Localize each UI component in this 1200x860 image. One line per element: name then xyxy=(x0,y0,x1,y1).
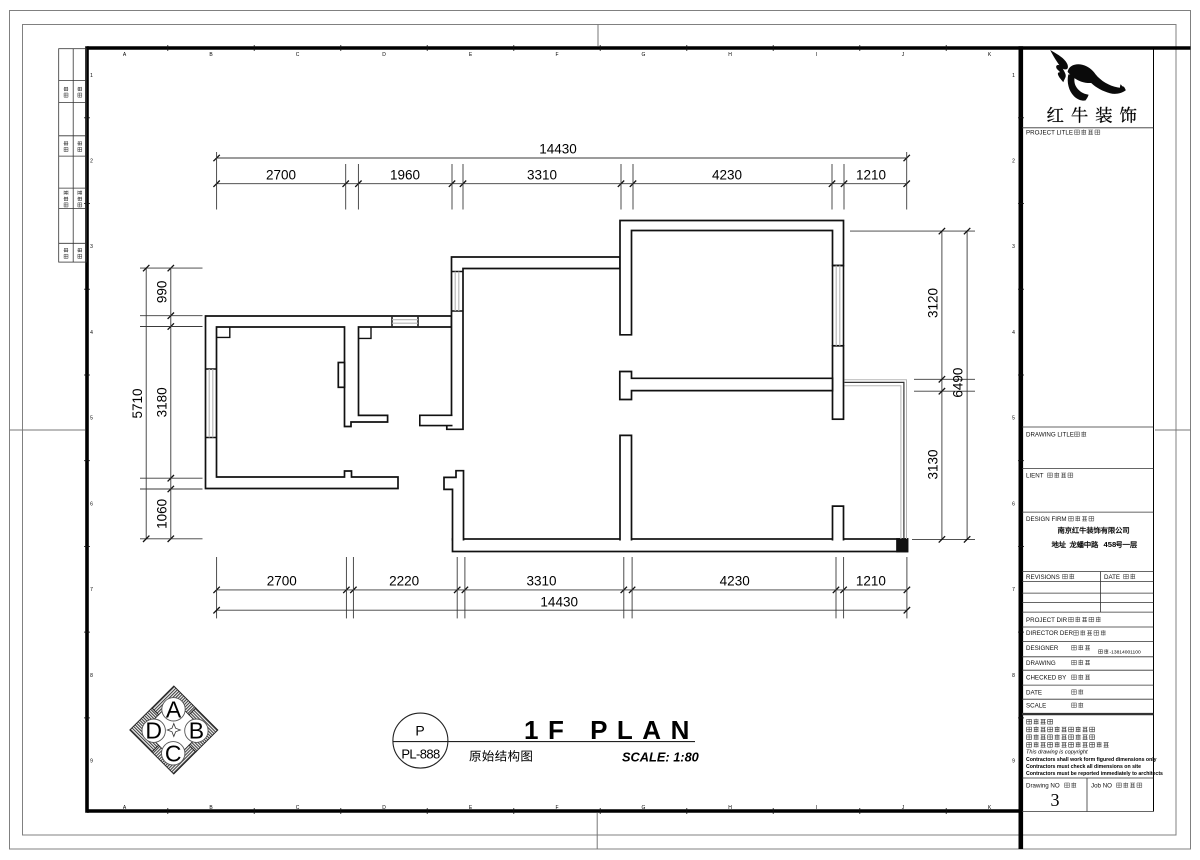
svg-text:-13814001100: -13814001100 xyxy=(1110,649,1141,655)
svg-text:458: 458 xyxy=(1104,540,1117,549)
svg-text:8: 8 xyxy=(1012,673,1015,679)
svg-text:SCALE: 1:80: SCALE: 1:80 xyxy=(622,750,699,765)
svg-text:2: 2 xyxy=(1012,159,1015,165)
svg-text:1: 1 xyxy=(1012,73,1015,79)
svg-text:PROJECT DIR: PROJECT DIR xyxy=(1026,617,1068,624)
svg-text:P: P xyxy=(415,723,424,739)
svg-text:Job NO: Job NO xyxy=(1091,783,1112,790)
svg-text:DATE: DATE xyxy=(1104,574,1120,581)
svg-text:4: 4 xyxy=(90,330,93,336)
svg-text:2: 2 xyxy=(90,159,93,165)
svg-text:SCALE: SCALE xyxy=(1026,703,1046,710)
svg-text:Contractors shall work form fi: Contractors shall work form figured dime… xyxy=(1026,757,1157,763)
svg-text:14430: 14430 xyxy=(539,142,577,157)
svg-text:REVISIONS: REVISIONS xyxy=(1026,574,1060,581)
svg-text:H: H xyxy=(728,52,732,58)
svg-text:4230: 4230 xyxy=(712,167,742,182)
svg-text:3130: 3130 xyxy=(925,449,940,479)
svg-text:5: 5 xyxy=(1012,416,1015,422)
svg-text:C: C xyxy=(296,52,300,58)
svg-text:DATE: DATE xyxy=(1026,689,1042,696)
svg-text:7: 7 xyxy=(90,587,93,593)
svg-text:2700: 2700 xyxy=(267,574,297,589)
svg-text:3120: 3120 xyxy=(925,288,940,318)
svg-text:1210: 1210 xyxy=(856,167,886,182)
svg-text:Contractors must be reported i: Contractors must be reported immediately… xyxy=(1026,771,1163,777)
svg-text:6: 6 xyxy=(90,501,93,507)
svg-text:9: 9 xyxy=(90,759,93,765)
svg-text:PL-888: PL-888 xyxy=(401,747,440,762)
svg-text:G: G xyxy=(642,52,646,58)
svg-text:G: G xyxy=(642,805,646,811)
svg-text:8: 8 xyxy=(90,673,93,679)
svg-text:5710: 5710 xyxy=(130,388,145,418)
svg-text:1960: 1960 xyxy=(390,167,420,182)
svg-text:H: H xyxy=(728,805,732,811)
svg-text:1: 1 xyxy=(90,73,93,79)
svg-text:C: C xyxy=(296,805,300,811)
svg-text:DESIGN FIRM: DESIGN FIRM xyxy=(1026,516,1067,523)
svg-text:1210: 1210 xyxy=(856,574,886,589)
svg-text:DRAWING: DRAWING xyxy=(1026,660,1056,667)
svg-text:14430: 14430 xyxy=(540,594,578,609)
svg-text:4: 4 xyxy=(1012,330,1015,336)
svg-text:7: 7 xyxy=(1012,587,1015,593)
svg-text:9: 9 xyxy=(1012,759,1015,765)
svg-text:3180: 3180 xyxy=(155,387,170,417)
svg-text:3: 3 xyxy=(90,244,93,250)
svg-text:D: D xyxy=(382,52,386,58)
svg-text:Drawing NO: Drawing NO xyxy=(1026,783,1060,790)
svg-text:5: 5 xyxy=(90,416,93,422)
svg-text:DIRECTOR DER: DIRECTOR DER xyxy=(1026,630,1074,637)
svg-text:990: 990 xyxy=(155,281,170,304)
svg-text:C: C xyxy=(165,740,182,766)
svg-text:A: A xyxy=(166,696,182,722)
svg-text:6: 6 xyxy=(1012,501,1015,507)
svg-text:4230: 4230 xyxy=(720,574,750,589)
svg-text:F: F xyxy=(555,52,558,58)
svg-text:3: 3 xyxy=(1051,790,1060,810)
svg-text:D: D xyxy=(382,805,386,811)
svg-text:CHECKED BY: CHECKED BY xyxy=(1026,675,1066,682)
svg-text:I: I xyxy=(816,52,817,58)
svg-text:B: B xyxy=(189,718,204,744)
svg-text:PROJECT LITLE: PROJECT LITLE xyxy=(1026,130,1073,137)
svg-text:1060: 1060 xyxy=(155,499,170,529)
svg-text:LIENT: LIENT xyxy=(1026,473,1044,480)
svg-text:3: 3 xyxy=(1012,244,1015,250)
svg-text:6490: 6490 xyxy=(950,368,965,398)
svg-text:DRAWING LITLE: DRAWING LITLE xyxy=(1026,432,1074,439)
svg-text:D: D xyxy=(145,718,162,744)
svg-text:This drawing is copyright: This drawing is copyright xyxy=(1026,750,1088,756)
svg-text:DESIGNER: DESIGNER xyxy=(1026,645,1059,652)
svg-text:1F PLAN: 1F PLAN xyxy=(524,715,699,745)
svg-text:3310: 3310 xyxy=(527,167,557,182)
svg-text:I: I xyxy=(816,805,817,811)
svg-text:Contractors must check all dim: Contractors must check all dimensions on… xyxy=(1026,764,1141,770)
svg-text:2700: 2700 xyxy=(266,167,296,182)
svg-text:3310: 3310 xyxy=(526,574,556,589)
svg-text:2220: 2220 xyxy=(389,574,419,589)
svg-text:F: F xyxy=(555,805,558,811)
